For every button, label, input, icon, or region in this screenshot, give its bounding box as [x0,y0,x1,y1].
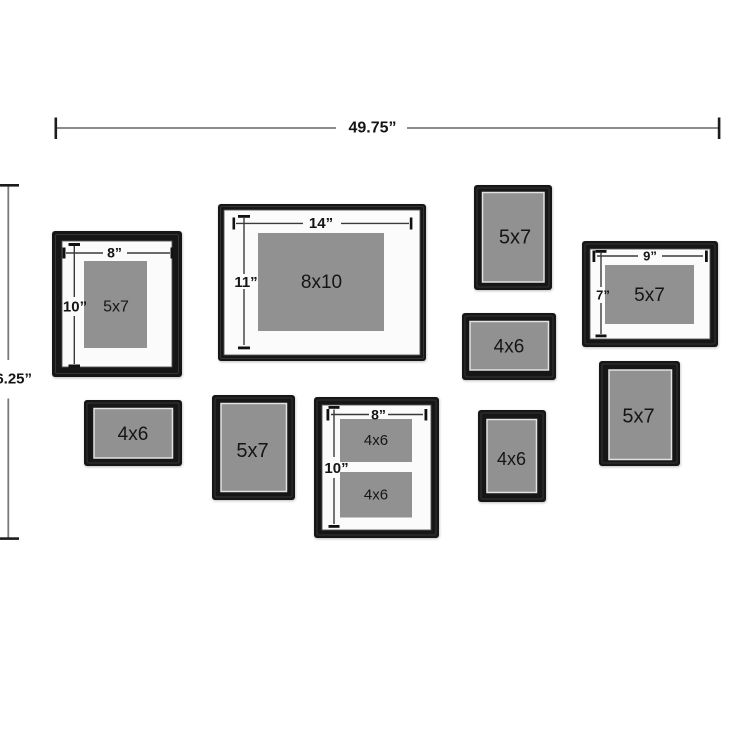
svg-text:4x6: 4x6 [118,424,149,445]
svg-text:9”: 9” [643,249,657,264]
svg-text:4x6: 4x6 [364,487,388,504]
svg-text:49.75”: 49.75” [348,120,396,137]
svg-text:11”: 11” [234,274,257,291]
svg-text:7”: 7” [596,288,610,303]
svg-text:5x7: 5x7 [236,440,268,462]
svg-text:10”: 10” [324,460,348,477]
svg-text:8x10: 8x10 [301,272,342,293]
svg-text:8”: 8” [371,407,386,423]
svg-text:5x7: 5x7 [103,299,129,316]
svg-text:5x7: 5x7 [622,406,654,428]
svg-text:10”: 10” [63,299,87,316]
svg-text:4x6: 4x6 [497,449,526,469]
svg-text:26.25”: 26.25” [0,371,32,388]
svg-text:8”: 8” [107,245,122,261]
svg-text:14”: 14” [309,215,333,232]
svg-text:4x6: 4x6 [364,432,388,449]
svg-text:5x7: 5x7 [499,227,531,249]
svg-text:4x6: 4x6 [494,337,525,358]
svg-text:5x7: 5x7 [634,285,665,306]
